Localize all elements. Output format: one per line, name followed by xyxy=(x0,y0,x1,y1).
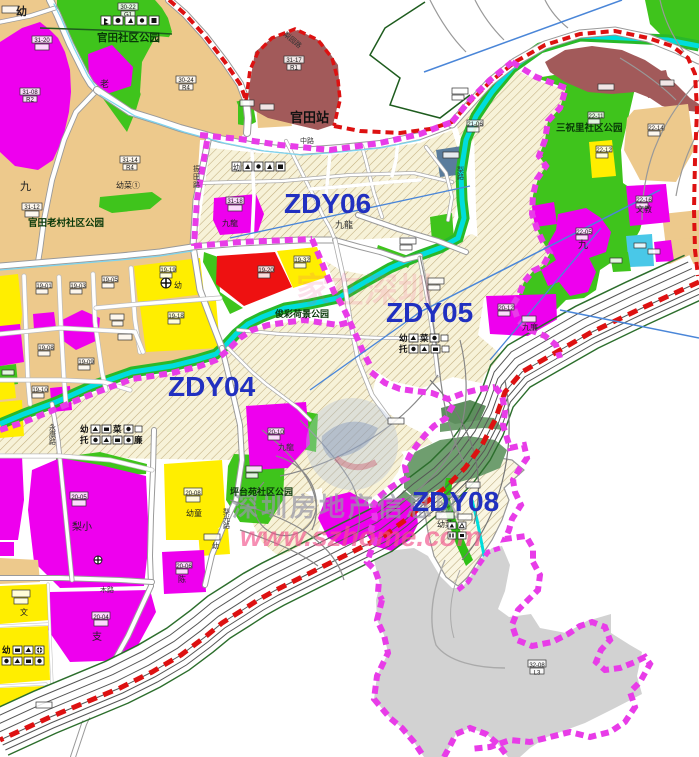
svg-text:幼: 幼 xyxy=(16,4,27,18)
svg-text:R4: R4 xyxy=(126,166,134,172)
svg-text:22-12: 22-12 xyxy=(596,148,612,154)
svg-text:支: 支 xyxy=(92,631,102,643)
svg-text:官田社区公园: 官田社区公园 xyxy=(97,31,160,44)
svg-text:九: 九 xyxy=(578,239,588,251)
svg-text:19-03: 19-03 xyxy=(70,284,86,290)
svg-text:31-14: 31-14 xyxy=(122,158,138,164)
svg-text:九龍: 九龍 xyxy=(278,442,294,452)
svg-text:19-09: 19-09 xyxy=(78,360,94,366)
svg-text:19-01: 19-01 xyxy=(36,284,52,290)
svg-text:L3: L3 xyxy=(534,671,541,677)
svg-text:R1: R1 xyxy=(290,66,298,72)
svg-text:32-08: 32-08 xyxy=(529,663,545,669)
svg-text:R4: R4 xyxy=(182,86,190,92)
svg-text:31-20: 31-20 xyxy=(34,38,50,44)
svg-text:九: 九 xyxy=(20,180,31,193)
svg-text:九龍: 九龍 xyxy=(335,219,353,230)
svg-text:19-05: 19-05 xyxy=(102,278,118,284)
svg-text:幼: 幼 xyxy=(233,163,240,172)
svg-text:30-24: 30-24 xyxy=(178,78,194,84)
svg-text:20-05: 20-05 xyxy=(71,495,87,501)
svg-text:19-08: 19-08 xyxy=(38,346,54,352)
svg-text:21-06: 21-06 xyxy=(467,122,483,128)
svg-text:九廉: 九廉 xyxy=(522,322,538,332)
svg-text:陈: 陈 xyxy=(178,574,186,584)
svg-text:幼童: 幼童 xyxy=(186,508,202,518)
svg-text:20-06: 20-06 xyxy=(176,564,192,570)
svg-text:20-04: 20-04 xyxy=(93,615,109,621)
svg-text:幼: 幼 xyxy=(399,333,408,343)
svg-text:31-17: 31-17 xyxy=(286,58,302,64)
svg-text:20-10: 20-10 xyxy=(268,430,284,436)
svg-text:30-22: 30-22 xyxy=(120,5,136,11)
svg-text:梨小: 梨小 xyxy=(72,520,92,533)
svg-text:19-32: 19-32 xyxy=(294,258,310,264)
svg-text:22-14: 22-14 xyxy=(648,126,664,132)
svg-text:R2: R2 xyxy=(26,98,34,104)
svg-text:19-18: 19-18 xyxy=(168,314,184,320)
svg-text:九龍: 九龍 xyxy=(222,218,238,228)
svg-text:20-12: 20-12 xyxy=(498,306,514,312)
svg-text:官田站: 官田站 xyxy=(290,110,329,125)
svg-text:ZDY04: ZDY04 xyxy=(168,371,256,402)
svg-text:梨路: 梨路 xyxy=(457,165,465,181)
svg-text:19-20: 19-20 xyxy=(258,268,274,274)
svg-text:振田路: 振田路 xyxy=(193,164,201,189)
svg-text:ZDY06: ZDY06 xyxy=(284,188,371,219)
svg-text:文: 文 xyxy=(20,607,28,617)
svg-text:幼: 幼 xyxy=(80,424,89,434)
svg-text:永康路: 永康路 xyxy=(49,423,57,446)
svg-text:幼: 幼 xyxy=(212,541,219,550)
svg-text:木路: 木路 xyxy=(100,585,114,594)
svg-text:ZDY05: ZDY05 xyxy=(386,297,473,328)
svg-text:菜: 菜 xyxy=(112,424,122,434)
svg-text:31-08: 31-08 xyxy=(22,90,38,96)
svg-text:中路: 中路 xyxy=(300,136,314,145)
svg-text:幼菜①: 幼菜① xyxy=(116,180,140,190)
svg-text:菜: 菜 xyxy=(419,333,429,343)
svg-text:31-18: 31-18 xyxy=(227,199,243,205)
svg-text:31-12: 31-12 xyxy=(24,205,40,211)
svg-text:19-19: 19-19 xyxy=(160,268,176,274)
svg-text:廉: 廉 xyxy=(134,435,143,445)
svg-text:幼: 幼 xyxy=(2,645,11,655)
svg-text:老: 老 xyxy=(100,78,109,89)
svg-text:ZDY08: ZDY08 xyxy=(412,486,499,517)
svg-text:官田老村社区公园: 官田老村社区公园 xyxy=(28,217,104,229)
svg-text:托: 托 xyxy=(80,435,89,445)
svg-text:22-11: 22-11 xyxy=(589,114,605,120)
svg-text:幼: 幼 xyxy=(174,280,182,290)
svg-text:20-08: 20-08 xyxy=(185,491,201,497)
svg-text:托: 托 xyxy=(399,344,408,354)
svg-text:22-16: 22-16 xyxy=(636,198,652,204)
svg-text:19-10: 19-10 xyxy=(32,388,48,394)
svg-text:俊彩荷景公园: 俊彩荷景公园 xyxy=(275,308,329,319)
svg-text:22-05: 22-05 xyxy=(576,230,592,236)
svg-text:坪台苑社区公园: 坪台苑社区公园 xyxy=(230,486,293,497)
svg-text:梨光路: 梨光路 xyxy=(223,507,231,530)
svg-text:文教: 文教 xyxy=(636,204,652,214)
